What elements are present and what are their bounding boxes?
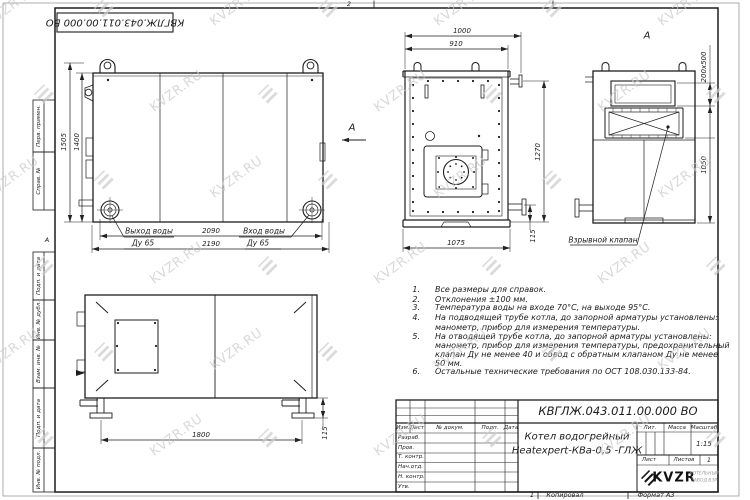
note-line: На отводящей трубе котла, до запорной ар… xyxy=(435,332,712,341)
sheet-frame xyxy=(3,1,739,500)
back-view xyxy=(403,32,549,252)
drawing-sheet: Перв. примен. Справ. № Подп. и дата Инв.… xyxy=(0,0,750,500)
margin-field-inv-podl: Инв. № подл. xyxy=(36,451,42,490)
dim-115-back: 115 xyxy=(529,229,537,242)
note-number-3: 3. xyxy=(404,303,420,312)
dim-2190: 2190 xyxy=(202,240,220,248)
dim-910: 910 xyxy=(449,40,462,48)
note-line: клапан Ду не менее 40 и обвод с обратным… xyxy=(435,350,718,359)
dim-115-side: 115 xyxy=(321,426,329,439)
inlet-water-label: Вход воды xyxy=(243,227,285,236)
product-name-line2: Heatexpert-КВа-0,5 -ГЛЖ xyxy=(512,446,642,457)
note-number-4: 4. xyxy=(404,313,420,322)
side-view xyxy=(76,295,328,444)
note-number-5: 5. xyxy=(404,332,420,341)
top-stamp-designation: КВГЛЖ.043.011.00.000 ВО xyxy=(46,17,184,28)
sheets-value: 1 xyxy=(707,456,711,464)
row-razrab: Разраб. xyxy=(398,435,420,441)
dim-200x500: 200х500 xyxy=(700,52,708,83)
explosion-valve-callout: Взрывной клапан xyxy=(568,236,637,245)
row-nachotd: Нач.отд. xyxy=(398,464,423,470)
margin-field-vzam-inv: Взам. инв. № xyxy=(36,345,42,383)
kvzr-logo-sub1: КОТЕЛЬНЫЙ xyxy=(689,472,718,477)
header-data: Дата xyxy=(504,425,518,431)
note-line: Температура воды на входе 70°С, на выход… xyxy=(435,303,650,312)
row-nkontr: Н. контр. xyxy=(398,474,425,480)
margin-field-podp-data-1: Подп. и дата xyxy=(36,257,42,295)
header-podp: Подп. xyxy=(482,425,499,431)
outlet-dn-label: Ду 65 xyxy=(132,239,154,248)
zone-bottom-number: 1 xyxy=(530,491,534,499)
scale-value: 1:15 xyxy=(696,440,712,448)
dim-1270: 1270 xyxy=(534,143,542,161)
format-label: Формат А3 xyxy=(637,491,674,499)
header-scale: Масштаб xyxy=(691,425,718,431)
row-utv: Утв. xyxy=(398,484,410,490)
view-a-label: А xyxy=(644,31,651,42)
dim-1075: 1075 xyxy=(447,239,465,247)
product-name-line1: Котел водогрейный xyxy=(525,432,630,443)
note-line: Все размеры для справок. xyxy=(435,285,546,294)
header-list: Лист xyxy=(410,425,424,431)
copied-label: Копировал xyxy=(546,491,583,499)
view-arrow-label: А xyxy=(349,123,356,134)
drawing-linework xyxy=(0,0,750,500)
kvzr-logo-sub2: ЗАВОД ВЗР xyxy=(691,479,717,484)
header-massa: Масса xyxy=(668,425,686,431)
margin-field-perv-primen: Перв. примен. xyxy=(36,105,42,147)
sheet-label: Лист xyxy=(642,457,656,463)
outlet-water-label: Выход воды xyxy=(125,227,173,236)
row-prov: Пров. xyxy=(398,445,414,451)
header-izm: Изм. xyxy=(396,425,409,431)
zone-left-marker: А xyxy=(45,236,49,244)
sheets-label: Листов xyxy=(674,457,695,463)
margin-field-podp-data-2: Подп. и дата xyxy=(36,399,42,437)
dim-1000: 1000 xyxy=(453,27,471,35)
margin-field-sprav-no: Справ. № xyxy=(36,167,42,194)
dim-2090: 2090 xyxy=(202,227,220,235)
dim-1505: 1505 xyxy=(60,133,68,151)
dim-1400: 1400 xyxy=(73,133,81,151)
front-view xyxy=(64,60,366,254)
note-line: На подводящей трубе котла, до запорной а… xyxy=(435,313,718,322)
note-line: манометр, прибор для измерения температу… xyxy=(435,341,730,350)
dim-1800: 1800 xyxy=(192,431,210,439)
dim-1050: 1050 xyxy=(700,156,708,174)
title-designation: КВГЛЖ.043.011.00.000 ВО xyxy=(538,404,697,418)
note-line: Остальные технические требования по ОСТ … xyxy=(435,367,691,376)
header-doc: № докум. xyxy=(436,425,464,431)
note-number-1: 1. xyxy=(404,285,420,294)
note-number-6: 6. xyxy=(404,367,420,376)
header-lit: Лит. xyxy=(644,425,657,431)
zone-top-number: 2 xyxy=(347,0,351,8)
view-a xyxy=(570,45,715,245)
margin-field-inv-dubl: Инв. № дубл. xyxy=(36,301,42,339)
inlet-dn-label: Ду 65 xyxy=(247,239,269,248)
note-line: манометр, прибор для измерения температу… xyxy=(435,323,640,332)
row-tkontr: Т. контр. xyxy=(398,454,424,460)
